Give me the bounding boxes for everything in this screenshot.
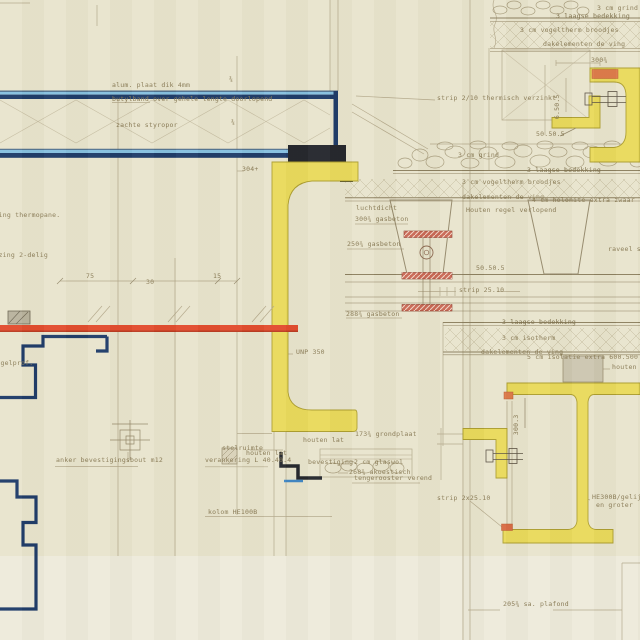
lower-frame-profile bbox=[0, 481, 36, 609]
label-bedekking-top: 3 laagse bedekking bbox=[556, 13, 630, 20]
label-gasbeton-250: 250¾ gasbeton bbox=[347, 241, 400, 248]
label-dakelementen-top: dakelementen de ving bbox=[543, 41, 625, 48]
label-verankering: verankering L 40.40.4 bbox=[205, 457, 291, 464]
label-houten-regel-verlopend: Houten regel verlopend bbox=[466, 207, 557, 214]
label-tick-b: ¾ bbox=[231, 119, 235, 126]
label-bedekking-mid: 3 laagse bedekking bbox=[527, 167, 601, 174]
label-raveel: raveel st. bbox=[608, 246, 640, 253]
bearing-pad bbox=[504, 392, 513, 399]
label-dim-650: 6.50.5 bbox=[554, 94, 561, 119]
label-dim-304: 304+ bbox=[242, 166, 258, 173]
label-glaswol: 2 cm glaswol bbox=[354, 459, 403, 466]
label-beglazing-2delig: beglazing 2-delig bbox=[0, 252, 48, 259]
label-dim-30: 30 bbox=[146, 279, 154, 286]
label-hoek-50505-mid: 50.50.5 bbox=[476, 265, 505, 272]
window-profiles bbox=[0, 337, 107, 610]
label-tengerooster: tengerooster verend bbox=[354, 475, 432, 482]
label-strip-2510: strip 25.10 bbox=[459, 287, 504, 294]
label-gasbeton-300: 300¾ gasbeton bbox=[355, 216, 408, 223]
label-dim-75: 75 bbox=[86, 273, 94, 280]
anchor-plates bbox=[402, 231, 452, 311]
label-beglazing-thermopane: beglazing thermopane. bbox=[0, 212, 60, 219]
label-zachte-styropor: zachte styropor bbox=[116, 122, 178, 129]
label-luchtdicht: luchtdicht bbox=[356, 205, 397, 212]
label-houten-lat-2: houten lat bbox=[303, 437, 344, 444]
label-strip-2-10: strip 2/10 thermisch verzinkt bbox=[437, 95, 556, 102]
label-dim-15: 15 bbox=[213, 273, 221, 280]
anchor-nut bbox=[420, 246, 433, 259]
drawing-sheet: alum. plaat dik 4mm butylband over gehel… bbox=[0, 0, 640, 640]
label-holonite: 4 cm holonite extra zwaar bbox=[532, 197, 635, 204]
label-dim-3003: 300.3 bbox=[513, 415, 520, 436]
label-butylband: butylband over gehele lengte doorlopend bbox=[112, 96, 272, 103]
label-bevestiging: bevestiging bbox=[308, 459, 353, 466]
glazing-bar bbox=[0, 306, 298, 332]
label-gasbeton-288: 288¾ gasbeton bbox=[346, 311, 399, 318]
parapet-channel-detail bbox=[552, 68, 640, 162]
label-alum-plaat: alum. plaat dik 4mm bbox=[112, 82, 190, 89]
gasbeton-ribs bbox=[390, 200, 590, 311]
label-bedekking-laag: 3 laagse bedekking bbox=[502, 319, 576, 326]
label-isolatie-600500: 5 cm isolatie extra 600.500 bbox=[527, 354, 638, 361]
strip-plate bbox=[502, 524, 513, 531]
label-isotherm: 3 cm isotherm bbox=[502, 335, 555, 342]
label-dim-300: 300¾ bbox=[591, 57, 607, 64]
label-hoek-50505-top: 50.50.5 bbox=[536, 131, 565, 138]
label-strip-2x2510: strip 2x25.10 bbox=[437, 495, 490, 502]
label-vleugelprof: vleugelprof. bbox=[0, 360, 33, 367]
label-he300b-2: en groter bbox=[596, 502, 633, 509]
label-grondplaat-173: 173¾ grondplaat bbox=[355, 431, 417, 438]
label-unp-350: UNP 350 bbox=[296, 349, 325, 356]
label-kolom-he100b: kolom HE100B bbox=[208, 509, 257, 516]
label-vogeltherm-top: 3 cm vogeltherm broodjes bbox=[520, 27, 619, 34]
label-vogeltherm-mid: 3 cm vogeltherm broodjes bbox=[462, 179, 561, 186]
label-anker: anker bevestigingsbout m12 bbox=[56, 457, 163, 464]
label-sa-plafond: 205¾ sa. plafond bbox=[503, 601, 569, 608]
label-houten-regel: houten regel bbox=[612, 364, 640, 371]
he300b-beam-detail bbox=[463, 356, 640, 543]
label-tick-a: ¾ bbox=[229, 76, 233, 83]
label-grind-mid: 3 cm grind bbox=[458, 152, 499, 159]
neoprene-block bbox=[592, 70, 618, 79]
